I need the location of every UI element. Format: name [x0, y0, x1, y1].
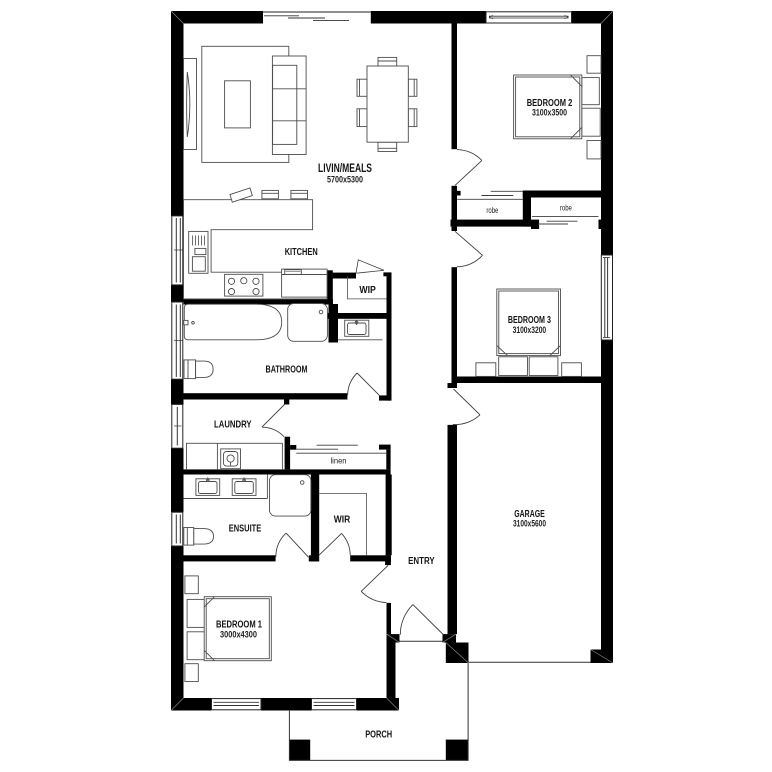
svg-text:WIP: WIP — [359, 284, 376, 296]
svg-text:3100x3200: 3100x3200 — [513, 325, 547, 335]
svg-text:BEDROOM 1: BEDROOM 1 — [216, 618, 262, 630]
svg-text:linen: linen — [331, 456, 347, 466]
svg-text:ENTRY: ENTRY — [408, 555, 435, 567]
svg-text:robe: robe — [560, 203, 572, 213]
svg-text:LIVIN/MEALS: LIVIN/MEALS — [318, 163, 372, 175]
svg-text:robe: robe — [486, 205, 498, 215]
svg-text:PORCH: PORCH — [365, 729, 392, 741]
svg-text:WIR: WIR — [334, 514, 351, 526]
svg-text:5700x5300: 5700x5300 — [327, 174, 363, 184]
svg-text:3000x4300: 3000x4300 — [220, 630, 257, 640]
svg-text:LAUNDRY: LAUNDRY — [214, 419, 252, 431]
svg-text:KITCHEN: KITCHEN — [285, 246, 318, 258]
svg-text:3100x3500: 3100x3500 — [532, 107, 567, 117]
svg-text:3100x5600: 3100x5600 — [513, 519, 546, 529]
svg-text:ENSUITE: ENSUITE — [229, 523, 262, 535]
svg-text:BATHROOM: BATHROOM — [266, 364, 308, 376]
